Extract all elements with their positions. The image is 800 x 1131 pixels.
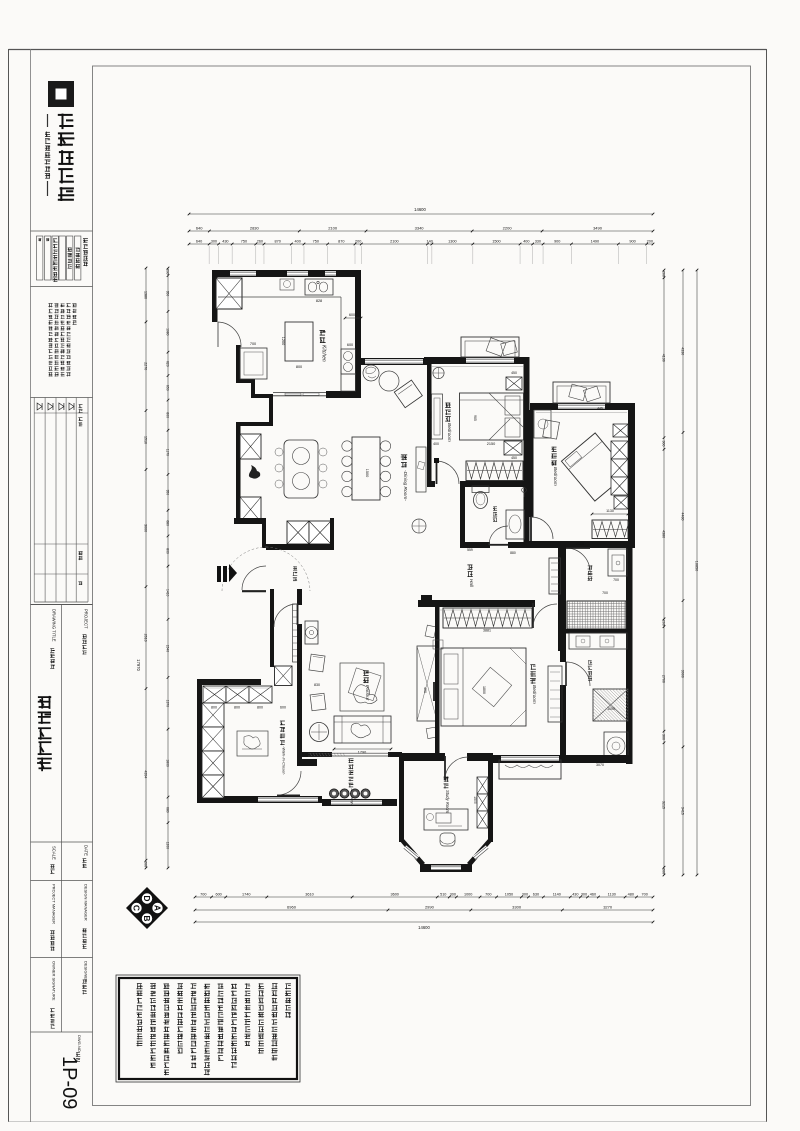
svg-text:1380: 1380 bbox=[144, 291, 148, 299]
svg-text:1490: 1490 bbox=[591, 240, 599, 244]
svg-text:900: 900 bbox=[554, 240, 560, 244]
svg-text:330: 330 bbox=[535, 240, 541, 244]
svg-text:300: 300 bbox=[450, 893, 456, 897]
svg-text:DRAWING TITLE: DRAWING TITLE bbox=[52, 609, 57, 642]
svg-text:460: 460 bbox=[590, 893, 596, 897]
svg-text:3490: 3490 bbox=[593, 226, 603, 231]
svg-text:680: 680 bbox=[166, 520, 170, 526]
svg-text:1510: 1510 bbox=[144, 436, 148, 444]
svg-text:200: 200 bbox=[662, 620, 666, 626]
svg-text:1500: 1500 bbox=[492, 240, 500, 244]
svg-text:2270: 2270 bbox=[144, 362, 148, 370]
svg-text:750: 750 bbox=[241, 240, 247, 244]
svg-text:C: C bbox=[131, 905, 141, 911]
svg-text:Kitchen: Kitchen bbox=[321, 345, 327, 362]
svg-text:4480: 4480 bbox=[681, 513, 685, 521]
svg-text:700: 700 bbox=[250, 342, 256, 346]
svg-text:3270: 3270 bbox=[603, 905, 613, 910]
svg-text:559: 559 bbox=[467, 548, 473, 552]
svg-text:200: 200 bbox=[662, 868, 666, 874]
svg-text:1000: 1000 bbox=[464, 893, 472, 897]
svg-text:700: 700 bbox=[200, 893, 206, 897]
svg-text:-Walk-In-Closet-: -Walk-In-Closet- bbox=[282, 746, 287, 775]
svg-text:6960: 6960 bbox=[287, 905, 297, 910]
svg-text:600: 600 bbox=[349, 313, 355, 317]
svg-text:430: 430 bbox=[222, 240, 228, 244]
svg-text:4330: 4330 bbox=[681, 347, 685, 355]
svg-text:3600: 3600 bbox=[390, 893, 398, 897]
svg-text:1170: 1170 bbox=[166, 449, 170, 456]
svg-text:4130: 4130 bbox=[662, 354, 666, 362]
svg-text:260: 260 bbox=[257, 240, 263, 244]
svg-text:650: 650 bbox=[166, 385, 170, 391]
svg-text:1740: 1740 bbox=[242, 893, 250, 897]
svg-text:870: 870 bbox=[275, 240, 281, 244]
svg-text:2150: 2150 bbox=[576, 542, 584, 546]
svg-text:1500: 1500 bbox=[365, 469, 369, 477]
svg-text:1410: 1410 bbox=[166, 589, 170, 597]
svg-text:Bedroom: Bedroom bbox=[532, 685, 537, 704]
svg-text:OWNER SIGNATURE: OWNER SIGNATURE bbox=[52, 961, 57, 1001]
svg-text:Hall: Hall bbox=[469, 579, 474, 588]
svg-text:14600: 14600 bbox=[414, 207, 426, 212]
svg-text:1540: 1540 bbox=[166, 645, 170, 653]
svg-text:400: 400 bbox=[423, 687, 427, 693]
svg-text:3415: 3415 bbox=[681, 807, 685, 815]
svg-text:510: 510 bbox=[440, 893, 446, 897]
svg-text:140: 140 bbox=[426, 240, 432, 244]
svg-text:Study Room: Study Room bbox=[445, 790, 450, 814]
svg-text:1P-09: 1P-09 bbox=[58, 1056, 80, 1109]
svg-text:1023: 1023 bbox=[198, 735, 202, 743]
svg-text:480: 480 bbox=[628, 893, 634, 897]
svg-text:600: 600 bbox=[347, 343, 353, 347]
svg-text:450: 450 bbox=[511, 371, 517, 375]
svg-text:14600: 14600 bbox=[418, 925, 430, 930]
svg-text:700: 700 bbox=[602, 591, 608, 595]
svg-text:3215: 3215 bbox=[662, 801, 666, 809]
svg-text:2830: 2830 bbox=[250, 226, 260, 231]
svg-text:1500: 1500 bbox=[473, 796, 477, 804]
svg-text:1130: 1130 bbox=[608, 893, 616, 897]
svg-text:2200: 2200 bbox=[503, 226, 513, 231]
svg-text:3900: 3900 bbox=[681, 670, 685, 678]
svg-text:D: D bbox=[142, 895, 152, 901]
svg-text:2100: 2100 bbox=[328, 226, 338, 231]
svg-text:DATE: DATE bbox=[84, 845, 89, 856]
svg-text:905: 905 bbox=[473, 415, 477, 421]
svg-text:4394: 4394 bbox=[144, 770, 148, 778]
svg-text:3881: 3881 bbox=[483, 629, 491, 633]
svg-text:4380: 4380 bbox=[662, 530, 666, 538]
svg-text:PROJECT: PROJECT bbox=[84, 609, 89, 629]
svg-text:400: 400 bbox=[433, 442, 439, 446]
svg-text:3070: 3070 bbox=[596, 763, 604, 767]
svg-text:1130: 1130 bbox=[606, 509, 614, 513]
svg-text:200: 200 bbox=[647, 240, 653, 244]
svg-text:1050: 1050 bbox=[505, 893, 513, 897]
svg-text:200: 200 bbox=[355, 240, 361, 244]
svg-text:300: 300 bbox=[522, 893, 528, 897]
svg-text:680: 680 bbox=[166, 807, 170, 813]
svg-text:880: 880 bbox=[510, 551, 516, 555]
svg-text:450: 450 bbox=[511, 456, 517, 460]
svg-text:700: 700 bbox=[642, 893, 648, 897]
svg-text:200: 200 bbox=[166, 269, 170, 275]
svg-text:PROJECT MANAGER: PROJECT MANAGER bbox=[52, 884, 57, 924]
svg-text:800: 800 bbox=[296, 365, 302, 369]
svg-text:620: 620 bbox=[166, 361, 170, 367]
svg-text:449: 449 bbox=[597, 407, 603, 411]
svg-text:800: 800 bbox=[166, 412, 170, 418]
svg-text:700: 700 bbox=[485, 893, 491, 897]
svg-text:700: 700 bbox=[613, 578, 619, 582]
svg-text:3000: 3000 bbox=[144, 524, 148, 532]
svg-text:3340: 3340 bbox=[415, 226, 425, 231]
svg-text:200: 200 bbox=[662, 271, 666, 277]
svg-text:600: 600 bbox=[215, 893, 221, 897]
svg-text:1790: 1790 bbox=[358, 751, 366, 755]
svg-text:300: 300 bbox=[211, 240, 217, 244]
svg-text:1080: 1080 bbox=[166, 328, 170, 336]
svg-text:300: 300 bbox=[581, 893, 587, 897]
svg-text:800: 800 bbox=[257, 706, 263, 710]
svg-text:1200: 1200 bbox=[166, 842, 170, 850]
svg-text:17970: 17970 bbox=[136, 659, 141, 671]
svg-text:Bedroom: Bedroom bbox=[447, 423, 452, 442]
svg-text:200: 200 bbox=[144, 861, 148, 867]
svg-text:2610: 2610 bbox=[144, 634, 148, 642]
svg-text:828: 828 bbox=[316, 299, 322, 303]
svg-text:400: 400 bbox=[523, 240, 529, 244]
svg-text:900: 900 bbox=[629, 240, 635, 244]
svg-text:-Dining Room-: -Dining Room- bbox=[402, 470, 408, 501]
svg-text:830: 830 bbox=[314, 683, 320, 687]
svg-text:16850: 16850 bbox=[695, 561, 699, 572]
svg-text:1801: 1801 bbox=[428, 411, 432, 419]
svg-text:300: 300 bbox=[662, 440, 666, 446]
svg-text:1000: 1000 bbox=[607, 707, 615, 711]
svg-text:2100: 2100 bbox=[390, 240, 398, 244]
svg-text:640: 640 bbox=[196, 240, 202, 244]
svg-text:630: 630 bbox=[533, 893, 539, 897]
svg-text:800: 800 bbox=[211, 706, 217, 710]
svg-text:1800: 1800 bbox=[482, 686, 486, 694]
svg-text:800: 800 bbox=[234, 706, 240, 710]
svg-text:870: 870 bbox=[338, 240, 344, 244]
svg-text:DESIGNER: DESIGNER bbox=[84, 961, 89, 982]
svg-text:2990: 2990 bbox=[425, 905, 435, 910]
svg-text:800: 800 bbox=[166, 548, 170, 554]
svg-text:B: B bbox=[142, 915, 152, 921]
svg-text:SCALE: SCALE bbox=[52, 846, 57, 860]
svg-text:640: 640 bbox=[196, 226, 203, 231]
svg-text:1370: 1370 bbox=[166, 700, 170, 708]
svg-text:DWG.NO: DWG.NO bbox=[77, 1035, 82, 1052]
svg-text:1200: 1200 bbox=[281, 337, 285, 345]
svg-text:Bedroom: Bedroom bbox=[553, 467, 558, 486]
svg-text:1800: 1800 bbox=[166, 759, 170, 767]
svg-text:950: 950 bbox=[166, 291, 170, 297]
svg-text:400: 400 bbox=[295, 240, 301, 244]
svg-text:DESIGN MANAGER: DESIGN MANAGER bbox=[84, 884, 89, 921]
svg-text:2150: 2150 bbox=[487, 442, 495, 446]
svg-text:750: 750 bbox=[313, 240, 319, 244]
svg-text:Parlour: Parlour bbox=[364, 685, 370, 701]
svg-text:1140: 1140 bbox=[553, 893, 561, 897]
svg-text:600: 600 bbox=[280, 706, 286, 710]
svg-text:2700: 2700 bbox=[662, 675, 666, 683]
svg-text:300: 300 bbox=[662, 734, 666, 740]
svg-text:3300: 3300 bbox=[512, 905, 522, 910]
svg-text:A: A bbox=[152, 905, 162, 911]
svg-text:950: 950 bbox=[166, 490, 170, 496]
svg-text:430: 430 bbox=[572, 893, 578, 897]
svg-text:3610: 3610 bbox=[305, 893, 313, 897]
svg-text:1300: 1300 bbox=[448, 240, 456, 244]
